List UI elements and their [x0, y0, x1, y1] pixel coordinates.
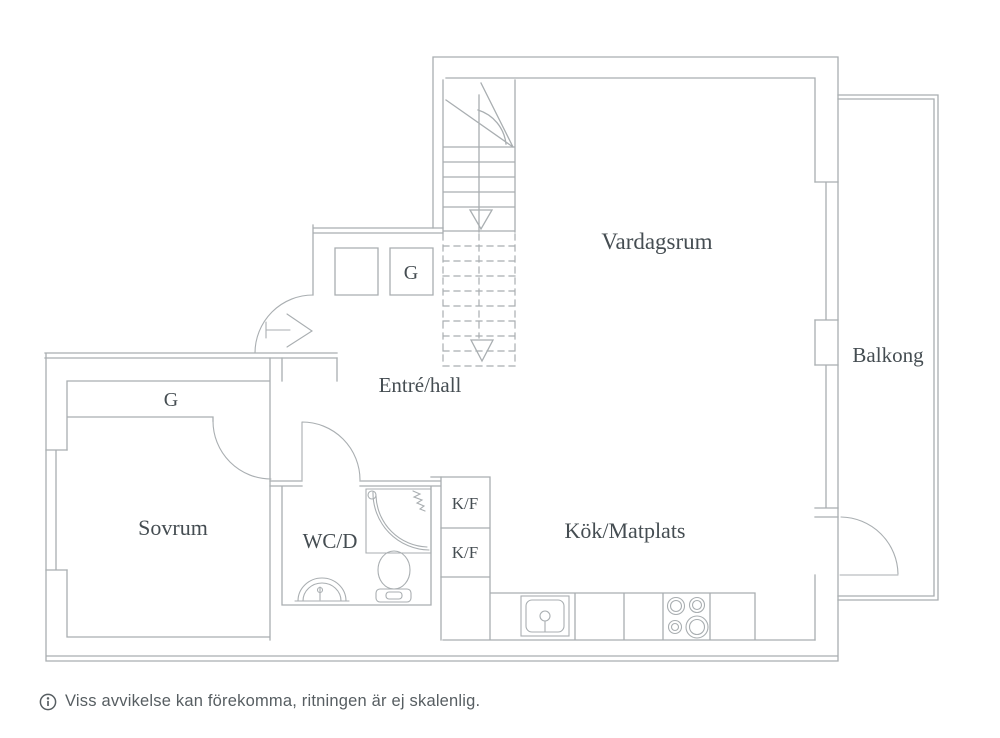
fridge-label-upper: K/F — [452, 494, 478, 513]
closet-label-bedroom: G — [164, 389, 178, 411]
fridge-label-lower: K/F — [452, 543, 478, 562]
entry-door — [255, 295, 313, 353]
hall-closets — [335, 248, 433, 295]
room-label-kok-matplats: Kök/Matplats — [565, 518, 686, 543]
stove — [668, 598, 709, 639]
toilet — [376, 551, 411, 602]
shower — [366, 489, 431, 553]
interior-walls — [67, 78, 815, 640]
balcony-door — [840, 517, 898, 575]
kitchen-sink — [521, 596, 569, 636]
room-label-sovrum: Sovrum — [138, 515, 208, 540]
floor-plan-drawing: Vardagsrum Balkong Entré/hall Sovrum WC/… — [0, 0, 1000, 738]
disclaimer-text: Viss avvikelse kan förekomma, ritningen … — [65, 692, 480, 711]
bedroom-door — [213, 421, 271, 479]
closet-label-hall: G — [404, 262, 418, 284]
entry-arrow-icon — [266, 314, 312, 347]
disclaimer-row: Viss avvikelse kan förekomma, ritningen … — [39, 692, 480, 711]
floor-plan-page: Vardagsrum Balkong Entré/hall Sovrum WC/… — [0, 0, 1000, 738]
stairs — [443, 80, 515, 366]
info-icon — [39, 693, 57, 711]
room-label-balkong: Balkong — [852, 343, 924, 367]
washbasin — [295, 578, 349, 601]
room-label-wcd: WC/D — [303, 529, 358, 553]
room-label-entre-hall: Entré/hall — [379, 373, 462, 397]
room-label-vardagsrum: Vardagsrum — [601, 229, 712, 254]
bathroom-door — [302, 422, 360, 480]
